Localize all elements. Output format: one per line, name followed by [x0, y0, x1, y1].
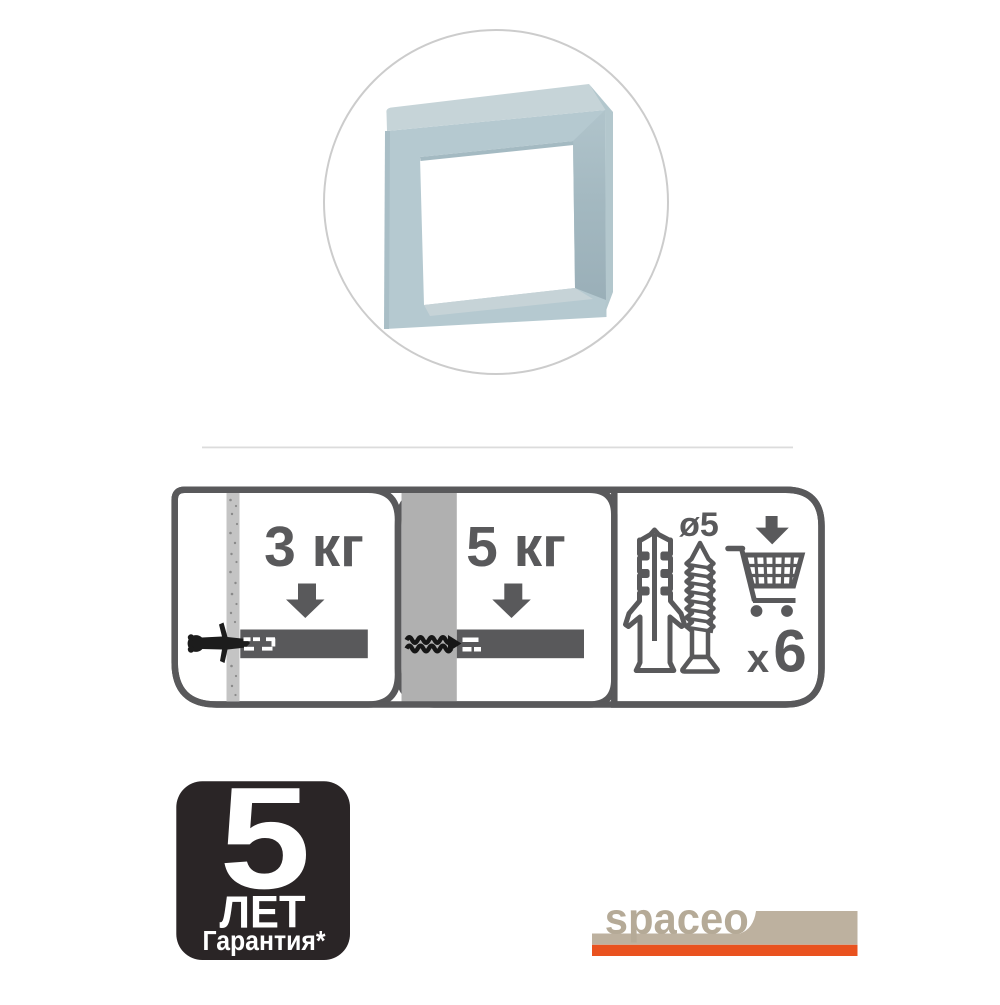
- svg-text:ø5: ø5: [679, 506, 719, 544]
- svg-text:spaceo: spaceo: [605, 895, 749, 944]
- svg-text:6: 6: [773, 618, 806, 685]
- svg-text:Гарантия*: Гарантия*: [203, 925, 326, 956]
- svg-text:5 кг: 5 кг: [466, 515, 566, 579]
- svg-text:3 кг: 3 кг: [264, 515, 364, 579]
- svg-text:x: x: [747, 637, 769, 681]
